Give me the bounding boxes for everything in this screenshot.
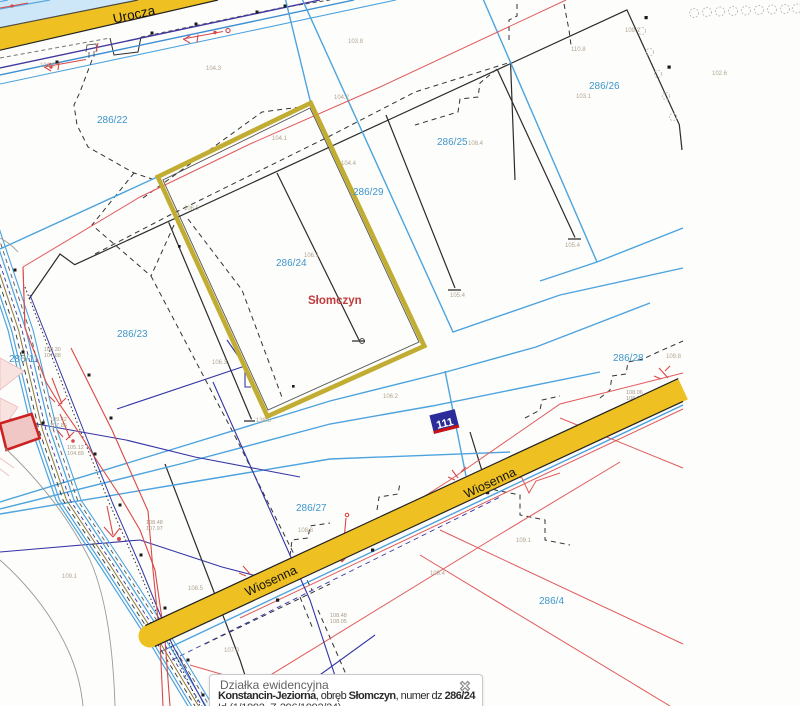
svg-text:107.88: 107.88 (44, 353, 61, 359)
svg-text:286/22: 286/22 (97, 115, 128, 126)
svg-text:Słomczyn: Słomczyn (308, 295, 362, 307)
svg-text:110.8: 110.8 (571, 47, 586, 53)
svg-text:108.4: 108.4 (468, 141, 484, 147)
svg-text:108.8: 108.8 (298, 528, 314, 534)
svg-text:138.5: 138.5 (256, 418, 272, 424)
svg-text:104.2: 104.2 (334, 95, 350, 101)
svg-text:101.9: 101.9 (40, 63, 56, 69)
svg-text:108.5: 108.5 (188, 586, 204, 592)
svg-text:104.89: 104.89 (67, 451, 84, 457)
svg-text:109.1: 109.1 (62, 574, 78, 580)
svg-text:104.3: 104.3 (206, 66, 222, 72)
svg-text:286/29: 286/29 (353, 187, 384, 198)
svg-text:109.1: 109.1 (516, 538, 532, 544)
svg-text:108.05: 108.05 (330, 619, 347, 625)
svg-text:107.9: 107.9 (224, 648, 240, 654)
svg-text:286/24: 286/24 (276, 258, 307, 269)
svg-text:286/25: 286/25 (437, 137, 468, 148)
svg-text:105.4: 105.4 (450, 293, 466, 299)
svg-text:106.2: 106.2 (383, 394, 399, 400)
svg-text:286/28: 286/28 (613, 353, 644, 364)
svg-text:286/27: 286/27 (296, 503, 327, 514)
svg-text:109.8: 109.8 (666, 354, 682, 360)
svg-text:102.6: 102.6 (712, 71, 728, 77)
svg-text:107.85: 107.85 (50, 423, 67, 429)
svg-text:103.1: 103.1 (576, 94, 592, 100)
svg-text:286/26: 286/26 (589, 81, 620, 92)
svg-text:109.2: 109.2 (625, 28, 641, 34)
svg-text:104.4: 104.4 (341, 161, 357, 167)
svg-text:286/23: 286/23 (117, 329, 148, 340)
svg-text:106.3: 106.3 (212, 360, 228, 366)
svg-text:106.5: 106.5 (184, 206, 200, 212)
svg-text:286/4: 286/4 (539, 596, 564, 607)
svg-text:286/11: 286/11 (9, 354, 39, 365)
svg-text:103.8: 103.8 (348, 39, 364, 45)
svg-text:107.97: 107.97 (146, 526, 163, 532)
svg-text:104.1: 104.1 (272, 136, 288, 142)
svg-text:108.4: 108.4 (430, 571, 446, 577)
svg-text:105.4: 105.4 (565, 243, 581, 249)
